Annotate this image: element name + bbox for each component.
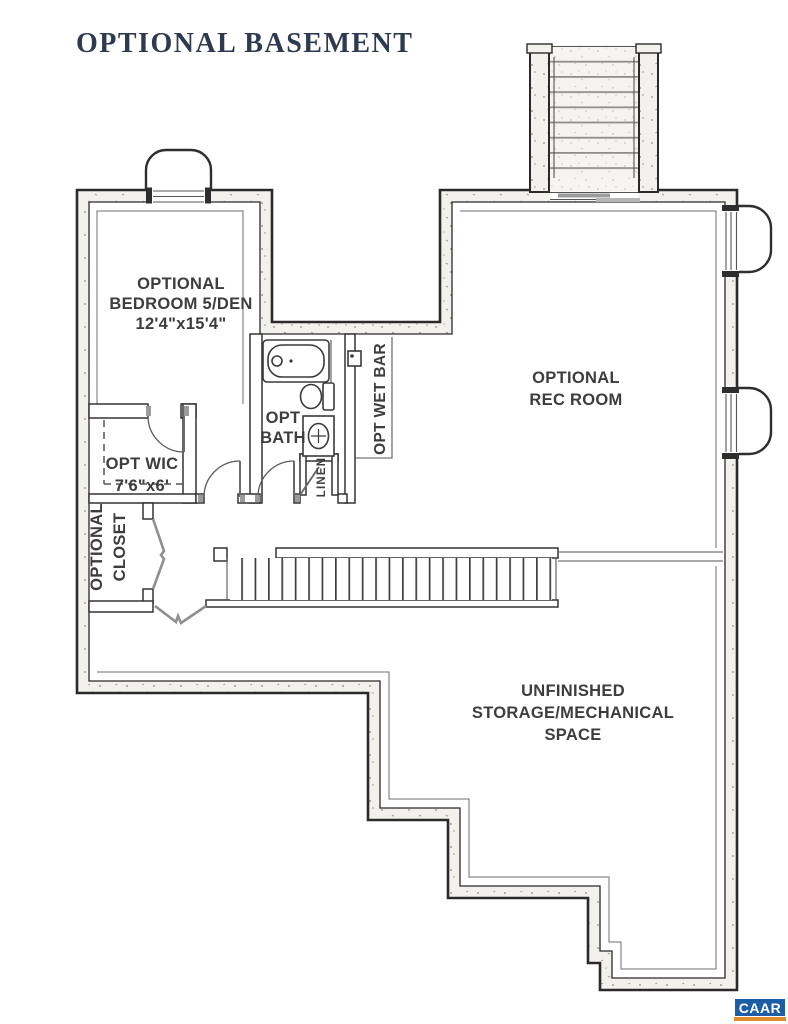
stair-treads (230, 558, 552, 600)
bedroom-label: BEDROOM 5/DEN (109, 295, 252, 313)
stair-south-rail (206, 600, 558, 607)
closet-bifold-door (153, 519, 164, 589)
bedroom-window-well (146, 150, 211, 204)
storage-framing-line (97, 566, 716, 969)
wic-optional-walls (104, 420, 183, 484)
linen-east-wall (332, 454, 338, 495)
recroom-window-well-upper (722, 205, 771, 277)
linen-label: LINEN (316, 457, 328, 498)
stair-north-wall (276, 548, 558, 558)
caar-logo-text: CAAR (734, 998, 786, 1017)
closet-south-wall (89, 601, 153, 612)
recroom-window-well-lower (722, 387, 771, 459)
wic-south-wall (89, 494, 196, 503)
wet-bar-label: OPT WET BAR (372, 343, 389, 455)
wic-door-arc (148, 416, 184, 452)
bedroom-south-wall (89, 404, 148, 418)
rec-room-label: REC ROOM (529, 391, 622, 409)
bath-door-arc (258, 461, 294, 497)
floor-plan: OPTIONAL BEDROOM 5/DEN 12'4"x15'4" OPT B… (0, 0, 788, 1024)
stairwell-left-wall (530, 45, 549, 192)
bedroom-label: OPTIONAL (137, 275, 225, 293)
hall-north-wall (338, 494, 347, 503)
caar-logo: CAAR (733, 997, 787, 1022)
storage-label: STORAGE/MECHANICAL (472, 704, 674, 722)
bath-label: BATH (260, 429, 306, 447)
stairwell-right-wall (639, 45, 658, 192)
storage-label: SPACE (544, 726, 601, 744)
closet-label: OPTIONAL (88, 503, 106, 591)
toilet (301, 383, 335, 410)
wet-bar-sink (348, 351, 361, 366)
bath-label: OPT (266, 409, 301, 427)
rec-room-label: OPTIONAL (532, 369, 620, 387)
bath-west-wall (250, 334, 262, 503)
exterior-stairwell (527, 44, 661, 202)
wic-label: OPT WIC (106, 455, 179, 473)
stairwell-door-leaf (596, 198, 640, 202)
closet-east-wall (143, 503, 153, 519)
storage-bifold-door (155, 606, 206, 623)
stair-newel-post (214, 548, 227, 561)
bathtub (263, 340, 331, 382)
bedroom-dimensions: 12'4"x15'4" (135, 315, 226, 333)
hall-door-arc (204, 461, 240, 497)
closet-label: CLOSET (111, 513, 129, 582)
storage-label: UNFINISHED (521, 682, 625, 700)
stairwell-door-leaf (558, 194, 610, 198)
wic-dimensions: 7'6"x6' (115, 477, 169, 495)
caar-logo-orange-bar (734, 1017, 786, 1021)
vanity-sink (303, 416, 334, 456)
